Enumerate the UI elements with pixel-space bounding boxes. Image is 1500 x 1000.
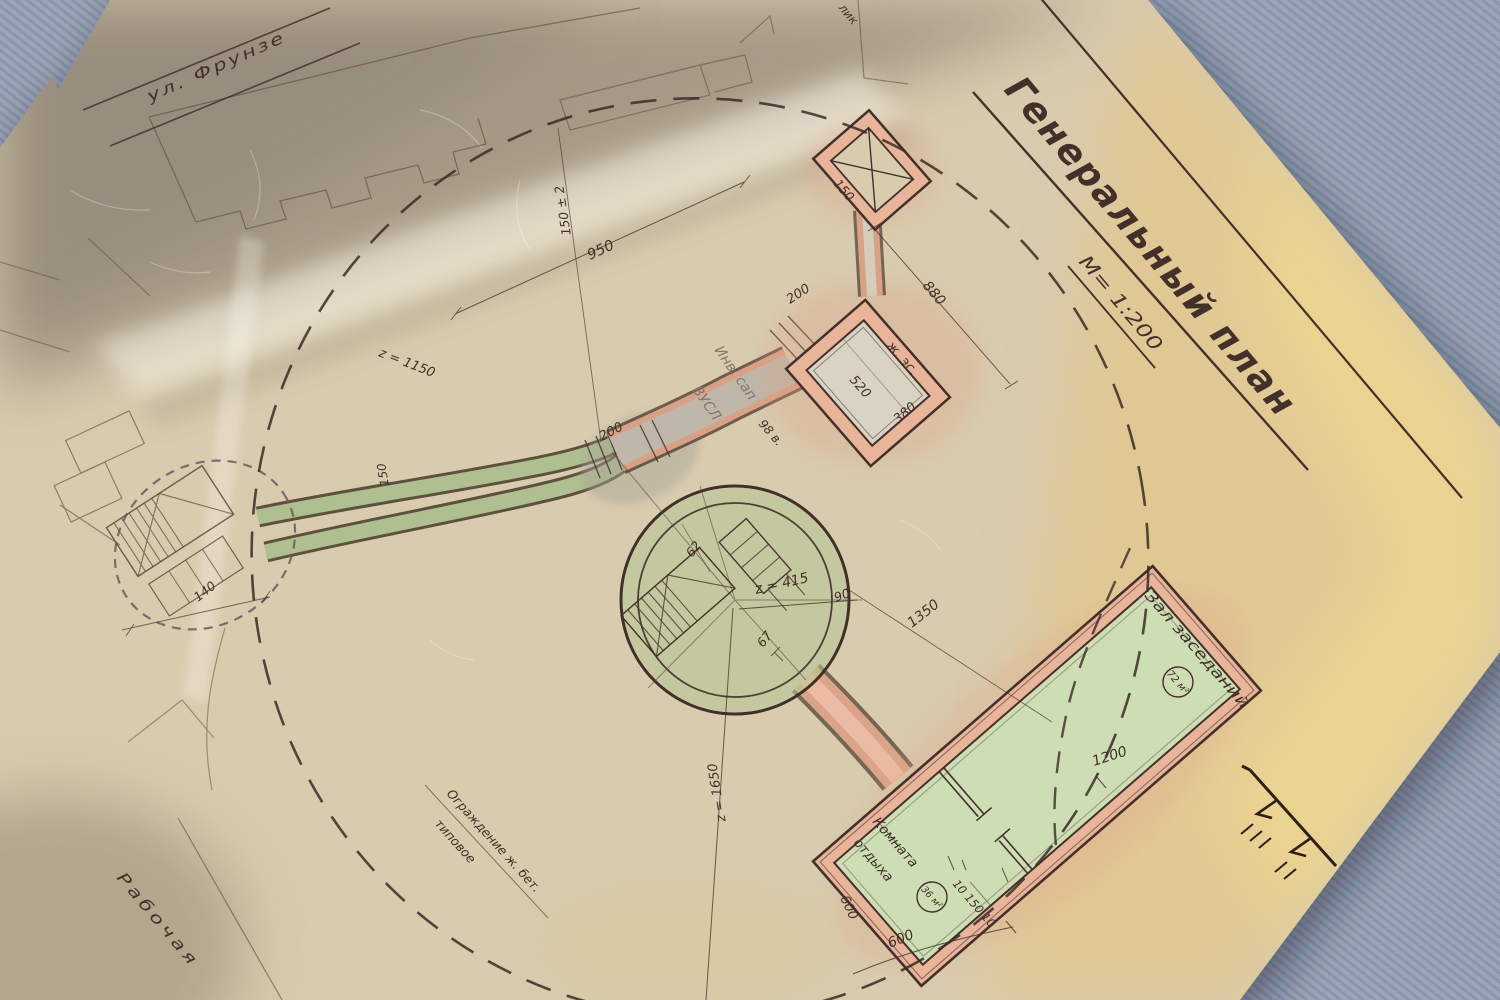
blueprint-photo: Генеральный план М= 1:200 ул. Фрунзе Раб… <box>0 0 1500 1000</box>
